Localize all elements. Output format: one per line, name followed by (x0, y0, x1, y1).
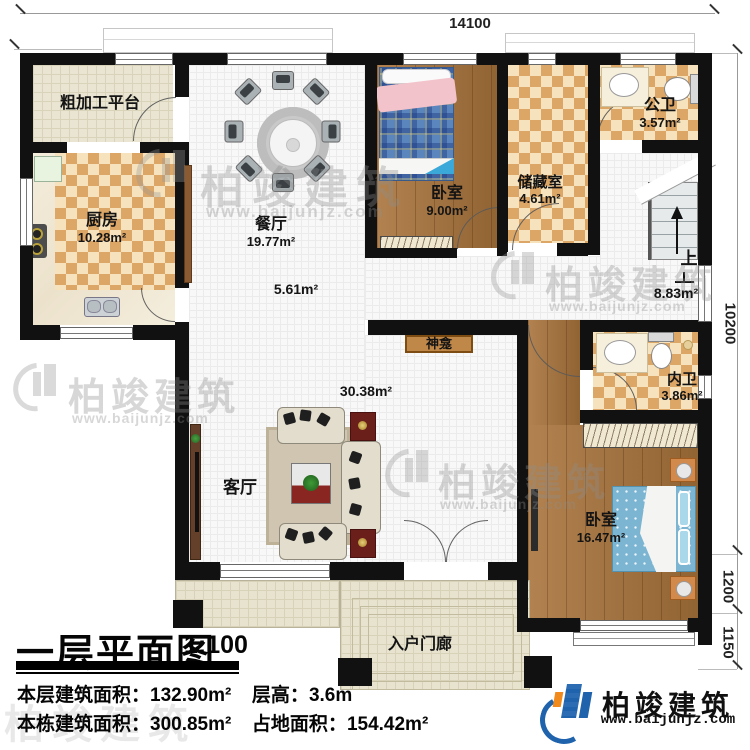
floor-drain (683, 340, 693, 350)
room-area-storage: 4.61m² (500, 192, 580, 206)
sink-oval (604, 340, 636, 365)
window (220, 564, 330, 578)
wall (580, 332, 593, 370)
room-area-bedroom-top: 9.00m² (407, 204, 487, 218)
room-label-storage: 储藏室 (500, 175, 580, 191)
wall (365, 248, 457, 258)
dining-chair (322, 121, 341, 143)
footprint-value: 154.42m² (347, 714, 428, 735)
room-area-living: 30.38m² (330, 384, 402, 399)
watermark-logo-icon (492, 250, 538, 306)
pillow (678, 491, 690, 527)
wall (488, 562, 528, 580)
toilet-tank (648, 332, 674, 342)
wall (20, 53, 115, 65)
hallway-area: 5.61m² (256, 282, 336, 297)
dimension-ext (712, 613, 737, 614)
window (60, 327, 133, 339)
wall (368, 320, 527, 335)
wall (642, 140, 698, 153)
dimension-top-width: 14100 (400, 15, 540, 32)
room-area-kitchen: 10.28m² (62, 231, 142, 245)
dimension-line-top (20, 13, 715, 14)
watermark-logo-icon (386, 448, 432, 504)
floor-plan-page: { "dimensions": { "top_width": "14100", … (0, 0, 750, 743)
watermark-url: www.baijunjz.com (72, 410, 209, 426)
wall (580, 320, 698, 332)
dimension-ext (698, 669, 737, 670)
wall (588, 65, 600, 255)
leader-tick (9, 39, 20, 50)
title-underline (16, 661, 239, 670)
watermark-logo-icon (137, 148, 189, 210)
wall (497, 65, 508, 252)
dimension-ext (712, 554, 737, 555)
story-height-value: 3.6m (309, 685, 352, 706)
brand-logo-icon (540, 682, 592, 736)
dining-table-deco (286, 138, 300, 152)
drawing-scale: 1:100 (184, 631, 248, 660)
room-label-kitchen: 厨房 (62, 213, 142, 230)
watermark-url: www.baijunjz.com (440, 496, 577, 512)
sofa-pillow (299, 409, 311, 421)
dimension-right-total: 10200 (722, 294, 739, 354)
bay-window (573, 632, 695, 646)
wall (330, 562, 404, 580)
watermark-logo-icon (14, 362, 60, 418)
stairs-arrow-shaft (676, 218, 678, 254)
wall (517, 618, 580, 632)
total-area-value: 300.85m² (150, 714, 231, 735)
wall (698, 53, 712, 265)
nightstand (670, 576, 696, 600)
floor-area-label: 本层建筑面积： (17, 685, 150, 706)
room-area-dining: 19.77m² (231, 235, 311, 249)
tv-living (195, 452, 199, 532)
window (227, 53, 327, 65)
room-label-bedroom-top: 卧室 (407, 186, 487, 203)
wall (175, 53, 189, 97)
nightstand (670, 458, 696, 482)
leader-line (14, 49, 102, 50)
closet (583, 423, 698, 448)
title-underline-thin (16, 672, 239, 674)
brand-website: www.baijunjz.com (596, 712, 740, 728)
sink-basin (87, 300, 101, 313)
sink-basin (103, 300, 117, 313)
wall (698, 322, 712, 375)
porch-label: 入户门廊 (375, 637, 465, 654)
stats-line-1: 本层建筑面积：132.90m² 层高：3.6m (17, 680, 352, 707)
footprint-label: 占地面积： (252, 714, 347, 735)
stairs-arrow-head (671, 206, 683, 219)
sofa-pillow (302, 531, 315, 544)
side-table-deco (358, 421, 367, 430)
room-label-bedroom-master: 卧室 (561, 513, 641, 530)
room-label-dining: 餐厅 (231, 217, 311, 234)
wall (20, 142, 67, 153)
room-label-private-bath: 内卫 (642, 372, 722, 388)
room-label-public-bath: 公卫 (620, 98, 700, 115)
wall (517, 580, 528, 618)
window (580, 620, 688, 631)
wall (20, 325, 60, 340)
room-label-living: 客厅 (210, 479, 270, 497)
eave-line (103, 28, 333, 53)
room-area-bedroom-master: 16.47m² (561, 531, 641, 545)
stats-line-2: 本栋建筑面积：300.85m² 占地面积：154.42m² (17, 709, 428, 736)
room-area-private-bath: 3.86m² (642, 389, 722, 403)
wall (20, 53, 33, 178)
total-area-label: 本栋建筑面积： (17, 714, 150, 735)
wall (517, 320, 528, 562)
dining-chair (225, 121, 244, 143)
dimension-ext (712, 53, 737, 54)
eave-line (505, 33, 695, 53)
wall (698, 399, 712, 645)
room-area-public-bath: 3.57m² (620, 116, 700, 130)
sofa-pillow (348, 477, 361, 490)
refrigerator (34, 156, 62, 182)
wall (477, 53, 528, 65)
wall (580, 410, 698, 423)
stair-hall-area: 8.83m² (636, 286, 716, 301)
dimension-right-porch: 1150 (720, 618, 737, 668)
wall (175, 562, 220, 580)
pillow (678, 529, 690, 565)
plant-small (191, 434, 200, 443)
wall (588, 140, 598, 153)
window (620, 53, 676, 65)
toilet-bowl (651, 343, 672, 369)
dimension-right-bed: 1200 (720, 562, 737, 612)
dining-chair (272, 71, 294, 90)
wall (556, 53, 620, 65)
window (528, 53, 556, 65)
floor-area-value: 132.90m² (150, 685, 231, 706)
story-height-label: 层高： (252, 685, 309, 706)
wall (133, 325, 189, 340)
plant-centerpiece (303, 475, 319, 491)
window (403, 53, 477, 65)
side-table-deco (358, 538, 367, 547)
stairs-up-label: 上 (676, 250, 702, 268)
window (115, 53, 173, 65)
room-label-platform: 粗加工平台 (25, 96, 175, 113)
shrine-label: 神龛 (405, 337, 473, 351)
sink-oval (609, 73, 639, 97)
dimension-line-right (737, 53, 738, 669)
window (20, 178, 33, 246)
